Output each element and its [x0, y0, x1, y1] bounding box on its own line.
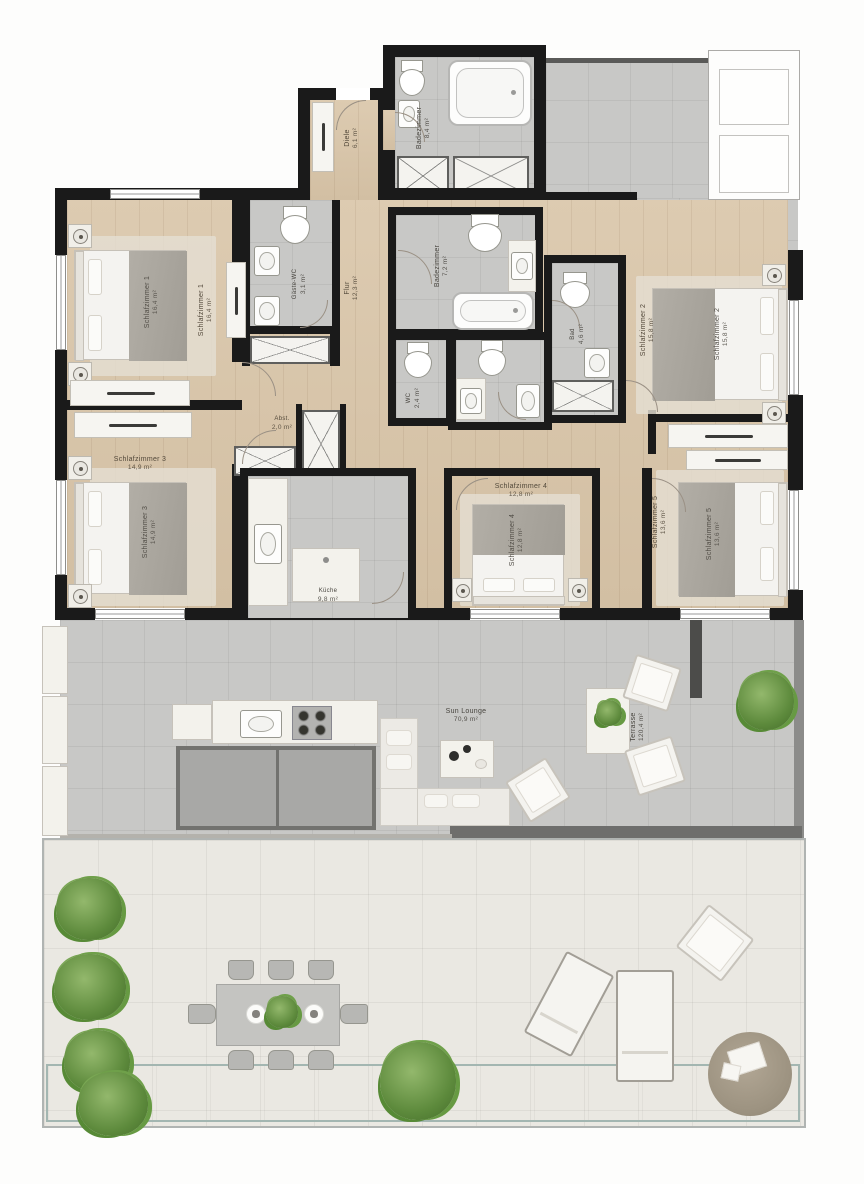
bathroom-sink: [584, 348, 610, 378]
window: [110, 189, 200, 199]
dining-chair: [188, 1004, 216, 1024]
terrace-plant: [54, 954, 126, 1020]
sofa-corner-section: [380, 788, 418, 826]
nightstand: [762, 264, 786, 286]
dresser: [226, 262, 246, 338]
outer-wall-top: [395, 188, 540, 200]
sofa-cushion: [452, 794, 480, 808]
upper-terrace-edge: [546, 58, 708, 63]
bath-top-door-gap: [383, 110, 395, 150]
toilet: [478, 340, 504, 374]
dining-chair: [228, 1050, 254, 1070]
room-label-corridor: Flur12,3 m²: [343, 276, 361, 300]
wardrobe: [250, 336, 330, 364]
sofa-cushion: [424, 794, 448, 808]
coffee-table: [440, 740, 494, 778]
entrance-door-gap: [336, 88, 370, 100]
room-label-storage: Abst.2,0 m²: [272, 416, 292, 432]
dining-chair: [308, 960, 334, 980]
outer-wall-bottom: [770, 608, 803, 620]
sofa-cushion: [386, 754, 412, 770]
outer-wall-left: [55, 188, 67, 255]
room-label-bedroom-5: Schlafzimmer 513,6 m²: [651, 496, 669, 548]
pergola-panel: [719, 135, 789, 193]
wall-bedroom5-stub: [648, 410, 656, 454]
dining-chair: [308, 1050, 334, 1070]
bed-label-bedroom-4: Schlafzimmer 412,8 m²: [508, 514, 526, 566]
window: [56, 480, 66, 575]
window: [680, 609, 770, 619]
terrace-plant: [78, 1072, 148, 1136]
closet-wall: [330, 334, 340, 366]
terrace-column: [690, 620, 702, 698]
lowboard: [686, 450, 788, 470]
hall-cabinet: [312, 102, 334, 172]
outer-wall-left: [55, 350, 67, 480]
outdoor-sink: [240, 710, 282, 738]
potted-plant-icon: [596, 700, 622, 726]
room-label-guest-wc: Gäste-WC3,1 m²: [292, 269, 308, 299]
plate: [304, 1004, 324, 1024]
toilet: [399, 60, 423, 94]
outer-wall-top: [378, 188, 395, 200]
kitchen-sink: [254, 524, 282, 564]
dining-chair: [268, 960, 294, 980]
lowboard: [70, 380, 190, 406]
nightstand: [68, 456, 92, 480]
wall-sink: [254, 246, 280, 276]
window: [789, 300, 799, 395]
bathtub: [448, 60, 532, 126]
sun-lounger: [616, 970, 674, 1082]
bed-bedroom-5: [678, 482, 788, 596]
room-label-sun-lounge: Sun Lounge70,9 m²: [446, 707, 487, 725]
bathroom-sink: [460, 388, 482, 414]
outer-wall-bottom: [55, 608, 95, 620]
bed-label-bedroom-1: Schlafzimmer 116,4 m²: [143, 276, 161, 328]
terrace-plant: [380, 1042, 456, 1120]
outer-wall-right: [788, 250, 803, 300]
toilet: [560, 272, 588, 306]
nightstand: [68, 224, 92, 248]
room-label-bedroom-4: Schlafzimmer 412,8 m²: [495, 482, 547, 500]
room-label-terrace: Terrasse120,4 m²: [629, 712, 647, 741]
nightstand: [762, 402, 786, 424]
table-decor: [449, 751, 459, 761]
shower-tray: [552, 380, 614, 412]
planter-box: [42, 626, 68, 694]
table-centerpiece-plant: [266, 996, 298, 1028]
bathroom-sink: [511, 252, 533, 280]
terrace-plant: [738, 672, 794, 730]
pergola: [708, 50, 800, 200]
room-label-bath-right: Bad4,6 m²: [570, 324, 586, 344]
room-label-bath-top: Badezimmer8,4 m²: [415, 107, 433, 149]
dining-chair: [228, 960, 254, 980]
room-label-bedroom-3: Schlafzimmer 314,9 m²: [114, 455, 166, 473]
glass-canopy: [176, 746, 376, 830]
lowboard: [668, 424, 788, 448]
pergola-panel: [719, 69, 789, 125]
room-label-bedroom-2: Schlafzimmer 215,8 m²: [639, 304, 657, 356]
lowboard: [74, 412, 192, 438]
table-decor: [475, 759, 487, 769]
daybed-cushion: [721, 1062, 742, 1081]
room-label-bedroom-1: Schlafzimmer 116,4 m²: [197, 284, 215, 336]
cooktop: [292, 706, 332, 740]
toilet: [468, 214, 500, 250]
bed-bedroom-1: [74, 250, 186, 360]
outer-wall-right: [788, 395, 803, 490]
terrace-plant: [56, 878, 122, 940]
window: [789, 490, 799, 590]
bed-bedroom-3: [74, 482, 186, 594]
room-label-hall: Diele6,1 m²: [343, 128, 361, 148]
covered-terrace-bottom-edge: [450, 826, 802, 838]
table-decor: [463, 745, 471, 753]
sofa-cushion: [386, 730, 412, 746]
wall-bedroom3-right: [232, 400, 242, 410]
dining-chair: [268, 1050, 294, 1070]
dining-chair: [340, 1004, 368, 1024]
covered-terrace-right-edge: [794, 620, 804, 838]
room-label-kitchen: Küche9,8 m²: [318, 588, 338, 604]
nightstand: [68, 584, 92, 608]
bed-label-bedroom-2: Schlafzimmer 215,8 m²: [713, 308, 731, 360]
bed-label-bedroom-3: Schlafzimmer 314,9 m²: [141, 506, 159, 558]
toilet: [280, 206, 308, 242]
planter-box: [42, 696, 68, 764]
nightstand: [568, 578, 588, 602]
planter-box: [42, 766, 68, 836]
nightstand: [452, 578, 472, 602]
bathtub: [452, 292, 534, 330]
window: [470, 609, 560, 619]
floor-plan: Diele6,1 m² Badezimmer8,4 m² Flur12,3 m²…: [0, 0, 864, 1184]
toilet: [404, 342, 430, 376]
outdoor-kitchen-cabinet: [172, 704, 212, 740]
window: [95, 609, 185, 619]
wall-sink: [254, 296, 280, 326]
outer-wall-bottom: [560, 608, 680, 620]
bed-label-bedroom-5: Schlafzimmer 513,6 m²: [705, 508, 723, 560]
plate: [246, 1004, 266, 1024]
faucet-dot: [323, 557, 329, 563]
room-label-wc-small: WC2,4 m²: [406, 388, 422, 408]
window: [56, 255, 66, 350]
room-label-bath-master: Badezimmer7,2 m²: [433, 245, 451, 287]
